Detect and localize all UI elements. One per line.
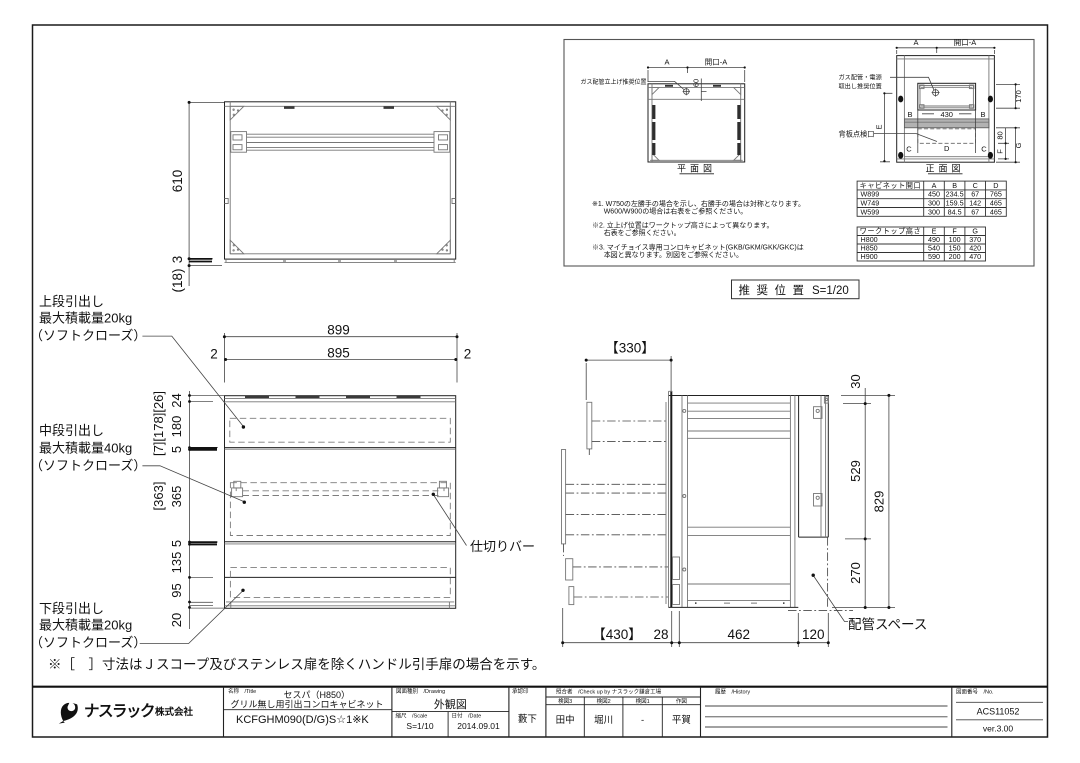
svg-text:C: C: [981, 145, 987, 154]
svg-text:B: B: [952, 181, 957, 190]
svg-text:84.5: 84.5: [948, 207, 962, 216]
svg-text:グリル無し用引出コンロキャビネット: グリル無し用引出コンロキャビネット: [231, 699, 384, 710]
svg-text:300: 300: [928, 199, 940, 208]
svg-text:W600/W900の場合は右表をご参照ください。: W600/W900の場合は右表をご参照ください。: [604, 207, 748, 216]
svg-text:765: 765: [990, 190, 1002, 199]
svg-text:170: 170: [1014, 90, 1023, 103]
svg-text:24: 24: [169, 393, 184, 407]
svg-text:ガス配管・電源: ガス配管・電源: [839, 74, 882, 82]
svg-text:仕切りバー: 仕切りバー: [470, 539, 535, 554]
svg-text:名称 /Title: 名称 /Title: [228, 687, 256, 695]
svg-text:履歴 /History: 履歴 /History: [715, 689, 750, 696]
svg-text:※3. マイチョイス専用コンロキャビネット(GKB/GKM/: ※3. マイチョイス専用コンロキャビネット(GKB/GKM/GKK/GKC)は: [592, 243, 804, 252]
svg-text:開口-A: 開口-A: [954, 38, 977, 47]
svg-text:C: C: [973, 181, 978, 190]
svg-text:S=1/20: S=1/20: [812, 285, 849, 297]
svg-text:G: G: [1014, 142, 1023, 148]
svg-text:図面種別 /Drawing: 図面種別 /Drawing: [396, 687, 445, 695]
svg-text:470: 470: [969, 252, 981, 261]
svg-text:365: 365: [169, 486, 184, 508]
svg-text:-: -: [641, 715, 644, 726]
svg-text:430: 430: [940, 110, 953, 119]
svg-text:【430】: 【430】: [592, 627, 642, 642]
svg-text:829: 829: [872, 491, 887, 513]
svg-text:529: 529: [848, 460, 863, 482]
svg-text:67: 67: [971, 190, 979, 199]
svg-text:最大積載量40kg: 最大積載量40kg: [39, 441, 132, 456]
svg-text:縮尺 /Scale: 縮尺 /Scale: [396, 712, 428, 720]
svg-text:上段引出し: 上段引出し: [39, 294, 104, 309]
svg-text:30: 30: [848, 374, 863, 388]
svg-text:67: 67: [971, 207, 979, 216]
svg-text:セスパ（H850）: セスパ（H850）: [284, 690, 351, 700]
svg-text:200: 200: [949, 252, 961, 261]
svg-text:照合者 /Check up by ナスラック鎌倉工場: 照合者 /Check up by ナスラック鎌倉工場: [556, 688, 662, 696]
svg-text:A: A: [913, 38, 918, 47]
svg-text:590: 590: [928, 252, 940, 261]
svg-text:80: 80: [996, 131, 1005, 139]
svg-text:F: F: [996, 149, 1005, 154]
svg-text:180: 180: [169, 416, 184, 438]
svg-text:5: 5: [169, 446, 184, 453]
svg-text:（ソフトクローズ）: （ソフトクローズ）: [30, 458, 146, 473]
svg-text:120: 120: [802, 627, 825, 642]
svg-text:2: 2: [210, 346, 218, 361]
svg-text:D: D: [993, 181, 998, 190]
svg-text:（ソフトクローズ）: （ソフトクローズ）: [30, 328, 146, 343]
svg-text:20: 20: [169, 613, 184, 627]
svg-text:[363]: [363]: [151, 482, 166, 511]
svg-text:5: 5: [169, 540, 184, 547]
svg-text:465: 465: [990, 199, 1002, 208]
svg-text:株式会社: 株式会社: [155, 706, 194, 718]
svg-text:610: 610: [170, 170, 185, 193]
svg-text:D: D: [944, 144, 950, 153]
svg-text:A: A: [664, 58, 669, 67]
svg-text:H900: H900: [861, 252, 878, 261]
svg-text:W899: W899: [861, 190, 880, 199]
svg-text:ACS11052: ACS11052: [977, 707, 1020, 717]
svg-text:895: 895: [327, 345, 350, 360]
svg-text:ver.3.00: ver.3.00: [983, 724, 1014, 734]
svg-text:28: 28: [653, 627, 668, 642]
svg-text:[7][178][26]: [7][178][26]: [151, 391, 166, 456]
svg-text:藪下: 藪下: [518, 713, 537, 725]
svg-text:検図2: 検図2: [597, 697, 611, 705]
svg-text:2014.09.01: 2014.09.01: [457, 721, 500, 731]
svg-text:465: 465: [990, 207, 1002, 216]
svg-text:正面図: 正面図: [925, 164, 964, 174]
svg-text:462: 462: [728, 627, 751, 642]
svg-text:外観図: 外観図: [434, 697, 467, 711]
svg-text:検図3: 検図3: [558, 697, 572, 705]
svg-text:ナスラック: ナスラック: [84, 702, 154, 720]
svg-text:配管スペース: 配管スペース: [848, 617, 927, 632]
svg-text:450: 450: [928, 190, 940, 199]
svg-text:3: 3: [170, 256, 185, 264]
svg-text:E: E: [875, 124, 884, 129]
svg-text:キャビネット開口: キャビネット開口: [860, 181, 922, 190]
svg-text:背板点検口: 背板点検口: [839, 130, 875, 139]
svg-text:（ソフトクローズ）: （ソフトクローズ）: [30, 635, 146, 650]
svg-text:2: 2: [464, 346, 472, 361]
svg-text:取出し推奨位置: 取出し推奨位置: [839, 83, 882, 91]
svg-text:最大積載量20kg: 最大積載量20kg: [39, 311, 132, 326]
svg-text:ガス配管立上げ推奨位置: ガス配管立上げ推奨位置: [581, 78, 647, 86]
svg-text:899: 899: [327, 323, 350, 338]
svg-text:C: C: [906, 145, 912, 154]
svg-text:B: B: [980, 110, 985, 119]
svg-text:※［ ］寸法はＪスコープ及びステンレス扉を除くハンドル引手扉: ※［ ］寸法はＪスコープ及びステンレス扉を除くハンドル引手扉の場合を示す。: [48, 657, 545, 672]
svg-text:【330】: 【330】: [605, 341, 655, 356]
svg-text:300: 300: [928, 207, 940, 216]
svg-text:平賀: 平賀: [672, 714, 691, 726]
svg-text:下段引出し: 下段引出し: [39, 601, 104, 616]
svg-text:A: A: [932, 181, 937, 190]
svg-text:60: 60: [692, 79, 701, 87]
svg-text:田中: 田中: [556, 714, 575, 726]
svg-text:日付 /Date: 日付 /Date: [452, 712, 482, 720]
svg-text:159.5: 159.5: [946, 199, 964, 208]
svg-text:中段引出し: 中段引出し: [39, 423, 104, 438]
svg-text:平面図: 平面図: [677, 164, 716, 174]
svg-text:開口-A: 開口-A: [705, 58, 728, 67]
svg-text:270: 270: [848, 562, 863, 584]
svg-text:(18): (18): [170, 268, 185, 292]
svg-text:B: B: [907, 110, 912, 119]
svg-text:作図: 作図: [676, 697, 688, 705]
svg-text:W599: W599: [861, 207, 880, 216]
svg-text:KCFGHM090(D/G)S☆1※K: KCFGHM090(D/G)S☆1※K: [236, 714, 369, 726]
svg-text:図面番号 /No.: 図面番号 /No.: [956, 689, 994, 696]
svg-text:右表をご参照ください。: 右表をご参照ください。: [604, 228, 681, 237]
svg-text:※2. 立上げ位置はワークトップ高さによって異なります。: ※2. 立上げ位置はワークトップ高さによって異なります。: [592, 221, 774, 230]
svg-text:W749: W749: [861, 199, 880, 208]
svg-text:検図1: 検図1: [636, 697, 650, 705]
svg-text:最大積載量20kg: 最大積載量20kg: [39, 618, 132, 633]
svg-text:95: 95: [169, 583, 184, 597]
svg-text:※1. W750の左勝手の場合を示し、右勝手の場合は対称とな: ※1. W750の左勝手の場合を示し、右勝手の場合は対称となります。: [592, 199, 805, 208]
svg-text:承認印: 承認印: [512, 687, 529, 695]
svg-text:本図と異なります。別図をご参照ください。: 本図と異なります。別図をご参照ください。: [604, 250, 743, 259]
svg-text:堀川: 堀川: [594, 715, 613, 726]
svg-text:142: 142: [969, 199, 981, 208]
svg-text:135: 135: [169, 552, 184, 574]
svg-text:S=1/10: S=1/10: [406, 721, 433, 731]
svg-text:推奨位置: 推奨位置: [739, 283, 811, 297]
svg-text:234.5: 234.5: [946, 190, 964, 199]
